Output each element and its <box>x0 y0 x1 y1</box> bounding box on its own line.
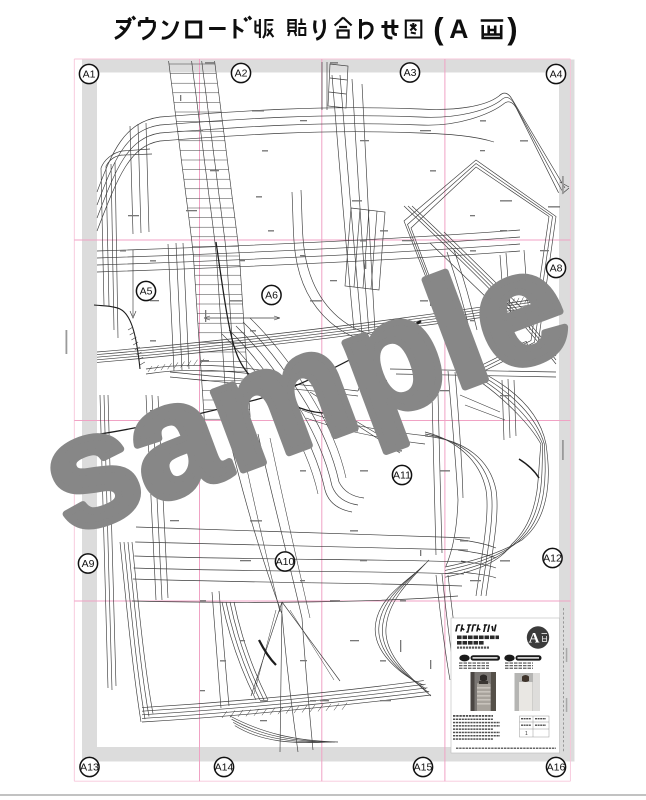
svg-text:A16: A16 <box>547 762 566 774</box>
svg-text:(: ( <box>433 11 444 46</box>
svg-text:A2: A2 <box>235 68 248 80</box>
svg-text:A11: A11 <box>393 470 411 482</box>
svg-text:A12: A12 <box>543 553 562 565</box>
svg-text:A5: A5 <box>140 286 153 298</box>
svg-text:A: A <box>529 631 540 647</box>
svg-text:A9: A9 <box>82 558 95 570</box>
svg-text:): ) <box>507 11 517 46</box>
svg-text:A3: A3 <box>404 67 417 79</box>
svg-text:A10: A10 <box>276 556 295 568</box>
svg-text:A8: A8 <box>550 263 563 275</box>
svg-text:A6: A6 <box>265 290 278 302</box>
svg-text:A14: A14 <box>215 762 234 774</box>
svg-text:A15: A15 <box>414 762 433 774</box>
svg-text:1: 1 <box>525 731 528 737</box>
svg-text:A4: A4 <box>550 69 563 81</box>
svg-text:A13: A13 <box>80 762 99 774</box>
svg-text:A1: A1 <box>83 69 96 81</box>
svg-text:A: A <box>449 14 468 44</box>
